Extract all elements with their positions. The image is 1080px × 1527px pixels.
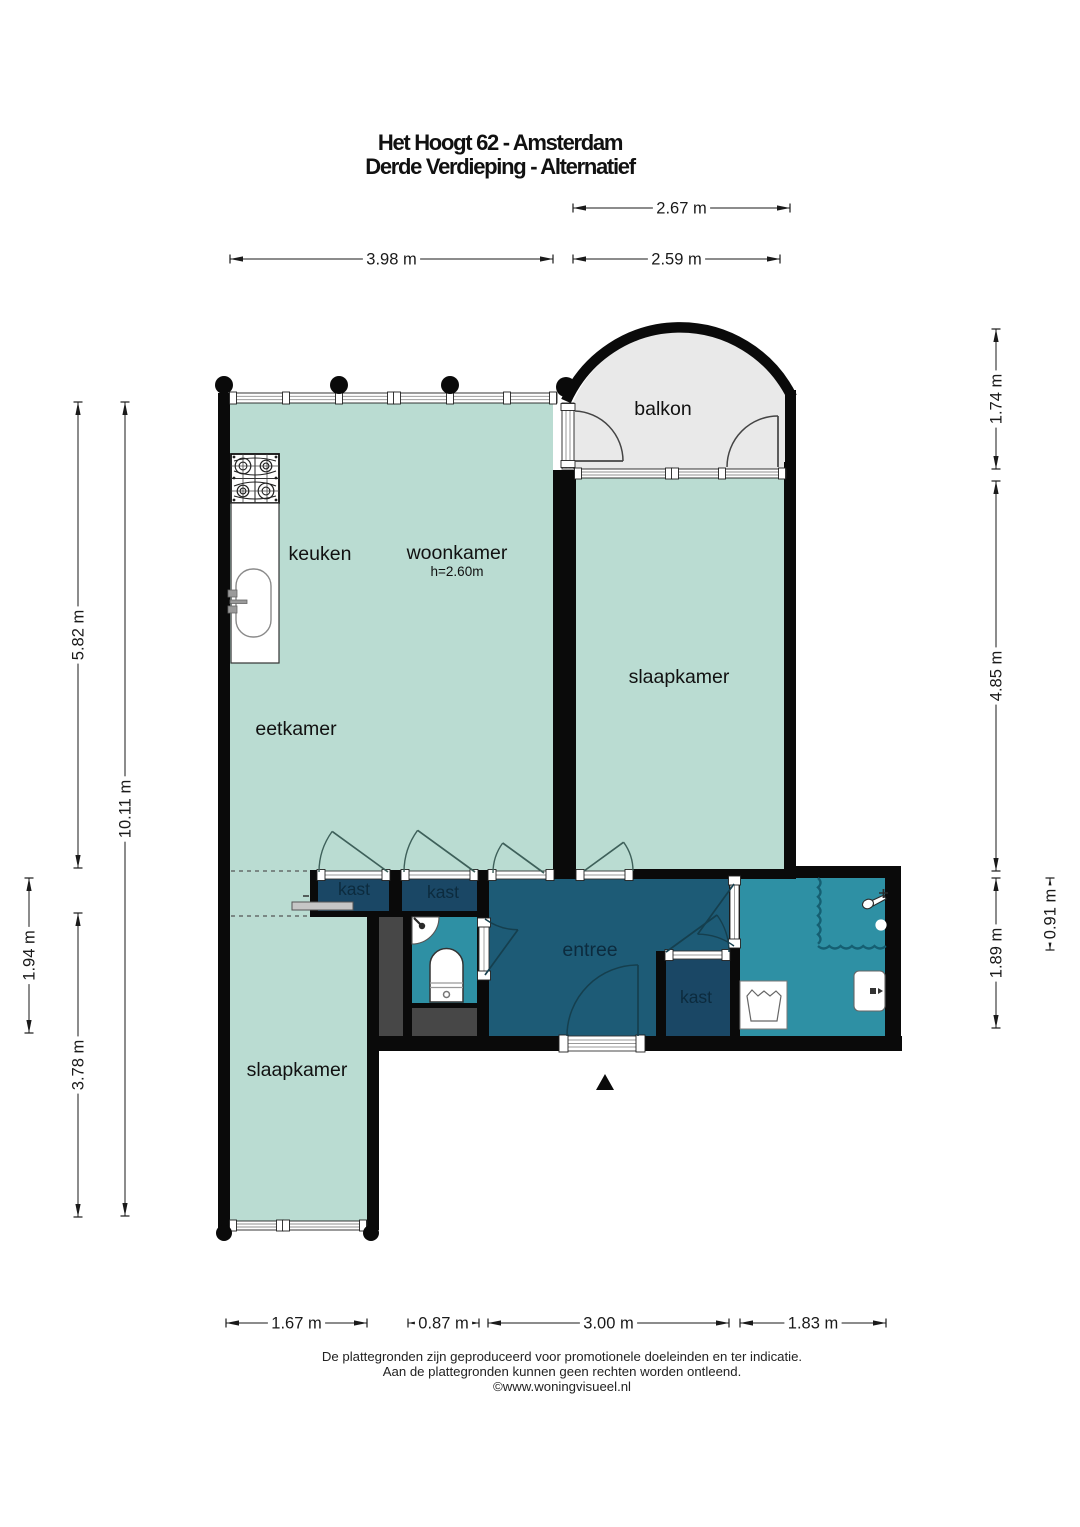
svg-text:Het Hoogt 62 - Amsterdam: Het Hoogt 62 - Amsterdam <box>378 130 623 155</box>
svg-text:balkon: balkon <box>634 398 691 420</box>
svg-text:kast: kast <box>680 987 712 1007</box>
svg-text:5.82 m: 5.82 m <box>70 610 88 660</box>
svg-text:kast: kast <box>338 879 370 899</box>
svg-text:2.67 m: 2.67 m <box>656 200 706 218</box>
svg-text:1.94 m: 1.94 m <box>21 930 39 980</box>
svg-text:1.74 m: 1.74 m <box>988 374 1006 424</box>
svg-text:Derde Verdieping - Alternatief: Derde Verdieping - Alternatief <box>365 154 636 179</box>
svg-text:2.59 m: 2.59 m <box>651 251 701 269</box>
svg-text:eetkamer: eetkamer <box>255 718 337 740</box>
svg-text:10.11 m: 10.11 m <box>117 780 135 838</box>
svg-text:kast: kast <box>427 882 459 902</box>
svg-text:1.89 m: 1.89 m <box>988 928 1006 978</box>
svg-text:3.78 m: 3.78 m <box>70 1040 88 1090</box>
svg-text:1.83 m: 1.83 m <box>788 1315 838 1333</box>
svg-text:woonkamer: woonkamer <box>406 542 508 564</box>
svg-text:slaapkamer: slaapkamer <box>247 1059 348 1081</box>
svg-text:h=2.60m: h=2.60m <box>431 564 484 579</box>
svg-text:3.98 m: 3.98 m <box>366 251 416 269</box>
svg-text:4.85 m: 4.85 m <box>988 651 1006 701</box>
svg-text:De plattegronden zijn geproduc: De plattegronden zijn geproduceerd voor … <box>322 1349 802 1364</box>
svg-text:0.91 m: 0.91 m <box>1042 889 1060 939</box>
svg-text:Aan de plattegronden kunnen ge: Aan de plattegronden kunnen geen rechten… <box>383 1364 742 1379</box>
svg-text:0.87 m: 0.87 m <box>418 1315 468 1333</box>
svg-text:entree: entree <box>562 939 617 961</box>
svg-text:1.67 m: 1.67 m <box>271 1315 321 1333</box>
svg-text:slaapkamer: slaapkamer <box>629 666 730 688</box>
svg-text:©www.woningvisueel.nl: ©www.woningvisueel.nl <box>493 1379 631 1394</box>
svg-text:3.00 m: 3.00 m <box>583 1315 633 1333</box>
svg-text:keuken: keuken <box>289 543 352 565</box>
